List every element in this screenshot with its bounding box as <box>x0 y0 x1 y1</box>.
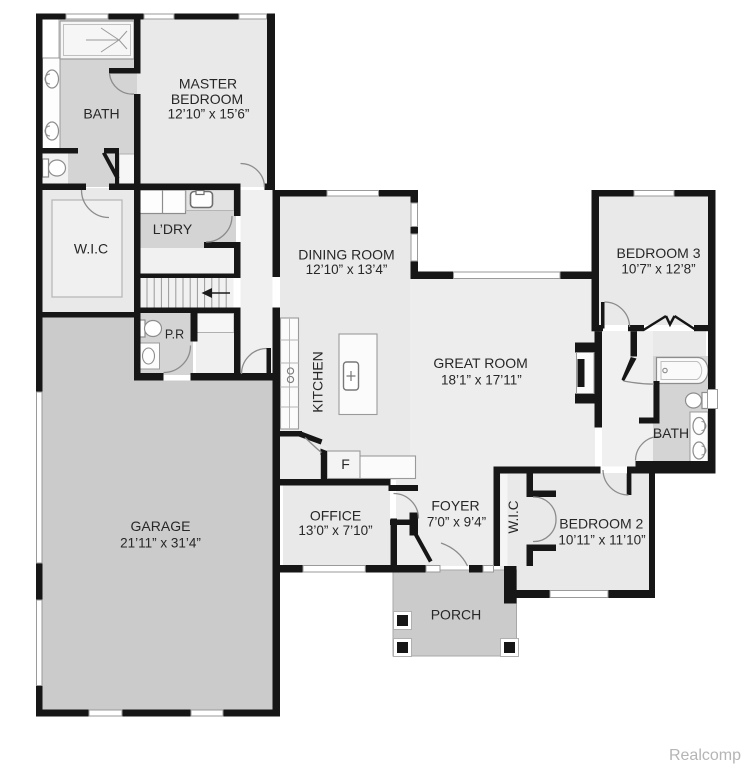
svg-text:12’10” x 15’6”: 12’10” x 15’6” <box>168 107 250 122</box>
svg-text:P.R: P.R <box>165 328 184 342</box>
svg-text:F: F <box>341 456 350 472</box>
svg-text:7’0” x 9’4”: 7’0” x 9’4” <box>427 515 486 530</box>
svg-text:Realcomp: Realcomp <box>669 747 741 764</box>
svg-text:GREAT ROOM: GREAT ROOM <box>433 355 527 371</box>
svg-text:W.I.C: W.I.C <box>506 500 521 533</box>
svg-text:13’0” x 7’10”: 13’0” x 7’10” <box>298 523 372 538</box>
svg-text:12’10” x 13’4”: 12’10” x 13’4” <box>306 262 388 277</box>
svg-text:BATH: BATH <box>653 425 689 441</box>
svg-text:W.I.C: W.I.C <box>74 241 108 257</box>
svg-text:DINING ROOM: DINING ROOM <box>298 247 394 263</box>
svg-text:BEDROOM 2: BEDROOM 2 <box>559 516 643 532</box>
svg-text:21’11” x 31’4”: 21’11” x 31’4” <box>120 536 201 551</box>
svg-text:BATH: BATH <box>83 106 119 122</box>
svg-text:MASTER: MASTER <box>179 76 237 92</box>
svg-text:FOYER: FOYER <box>431 498 479 514</box>
svg-text:18’1” x 17’11”: 18’1” x 17’11” <box>441 373 522 388</box>
svg-text:L’DRY: L’DRY <box>153 221 193 237</box>
svg-text:10’7” x 12’8”: 10’7” x 12’8” <box>621 262 695 277</box>
svg-text:BEDROOM 3: BEDROOM 3 <box>616 245 700 261</box>
svg-text:10’11” x 11’10”: 10’11” x 11’10” <box>558 533 645 548</box>
svg-text:OFFICE: OFFICE <box>310 508 361 524</box>
svg-text:KITCHEN: KITCHEN <box>310 351 326 412</box>
svg-text:GARAGE: GARAGE <box>131 518 191 534</box>
svg-text:BEDROOM: BEDROOM <box>171 91 243 107</box>
svg-text:PORCH: PORCH <box>431 607 482 623</box>
